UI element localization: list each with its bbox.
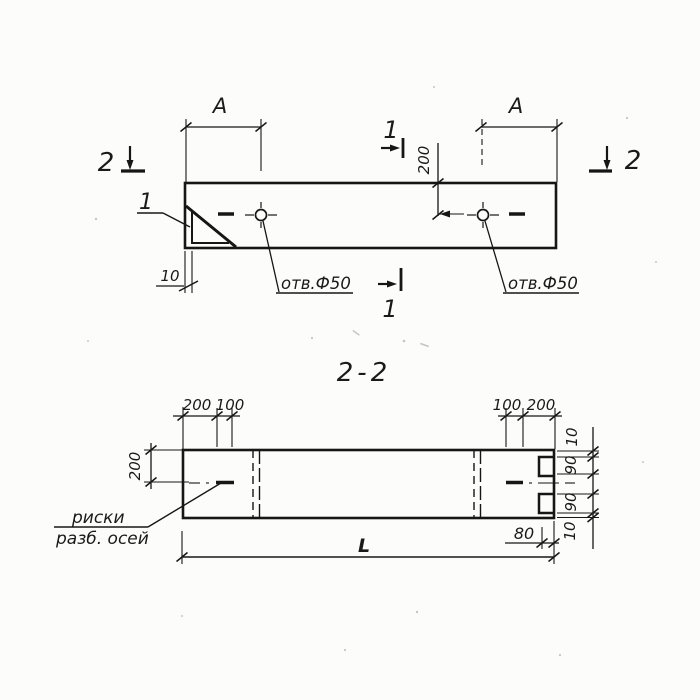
dim-value: 200 [527, 396, 556, 414]
dim-top-left: 200 100 [173, 396, 244, 449]
dim-value: 10 [563, 427, 581, 446]
label-leader [263, 221, 279, 292]
marker-arrowhead-down [127, 160, 134, 170]
dim-length: L [177, 521, 560, 564]
hole-left [218, 202, 277, 228]
dim-a-right-value: A [507, 94, 523, 118]
dim-value: 10 [561, 521, 579, 540]
marker-2-left-label: 2 [98, 148, 115, 178]
section-marker-1-top: 1 [381, 116, 403, 158]
dim-value: 100 [216, 396, 245, 414]
section-marker-2-left: 2 [98, 146, 145, 178]
plan-view: 1 A [98, 94, 642, 323]
dim-value: 200 [126, 452, 144, 481]
plan-outline [185, 183, 556, 248]
section-marker-1-bottom: 1 [378, 268, 401, 323]
detail-callout-label: 1 [139, 190, 153, 215]
dim-value: 90 [562, 455, 580, 474]
technical-drawing: 1 A [0, 0, 700, 700]
dim-a-left: A [181, 94, 267, 182]
section-title: 2-2 [337, 358, 391, 388]
marker-2-right-label: 2 [625, 146, 642, 176]
dim-200-value: 200 [415, 146, 433, 175]
detail-callout: 1 [137, 190, 190, 227]
marker-1-bottom-label: 1 [382, 295, 397, 323]
marker-arrowhead-down [604, 160, 611, 170]
hole-left-circle [256, 210, 267, 221]
joint-lines-right [474, 450, 481, 518]
section-view: 2-2 [54, 358, 599, 564]
hole-label-left: отв.Ф50 [263, 221, 353, 293]
dim-notch-depth: 80 [505, 524, 560, 549]
label-leader [485, 221, 506, 292]
dim-length-value: L [358, 535, 370, 557]
dim-value: 80 [514, 524, 534, 543]
dim-value: 200 [183, 396, 212, 414]
dim-10-value: 10 [160, 267, 179, 285]
axes-note: риски разб. осей [54, 483, 221, 549]
joint-lines-left [253, 450, 260, 518]
marker-1-top-label: 1 [383, 116, 398, 144]
centerline-left [189, 483, 234, 484]
dim-value: 90 [562, 492, 580, 511]
hole-label-left-text: отв.Ф50 [281, 274, 351, 293]
note-line1: риски [71, 508, 125, 528]
dim-edge-10: 10 [156, 251, 198, 293]
notch-bottom [539, 494, 554, 513]
section-outline [183, 450, 554, 518]
dim-left-depth: 200 [126, 443, 189, 489]
notch-top [539, 457, 554, 476]
note-leader [148, 483, 221, 527]
dim-top-right: 100 200 [493, 396, 562, 449]
marker-arrowhead-right [390, 145, 400, 152]
triangle-hypotenuse [186, 206, 236, 247]
dim-a-right: A [476, 94, 563, 182]
marker-arrowhead-right [387, 281, 397, 288]
hole-right [467, 202, 525, 228]
centerline-right [506, 483, 575, 484]
section-marker-2-right: 2 [589, 146, 641, 176]
dim-hole-offset-200: 200 [415, 143, 464, 220]
dim-value: 100 [493, 396, 522, 414]
dim-right-chain: 10 90 90 10 [557, 427, 599, 549]
hole-label-right-text: отв.Ф50 [508, 274, 578, 293]
hole-right-circle [478, 210, 489, 221]
drawing-sheet: 1 A [0, 0, 700, 700]
note-line2: разб. осей [55, 529, 149, 549]
corner-triangle-detail [186, 206, 236, 247]
dim-a-left-value: A [211, 94, 227, 118]
hole-label-right: отв.Ф50 [485, 221, 579, 293]
